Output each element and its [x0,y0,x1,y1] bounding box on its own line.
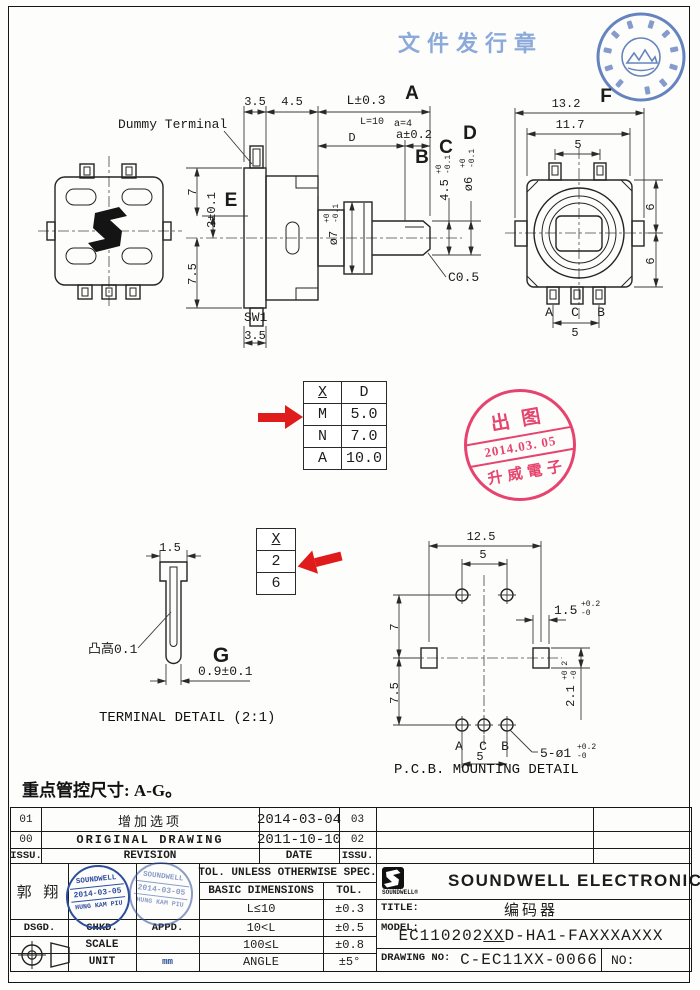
dim-slot-height: 2.1 [564,685,578,707]
pcb-detail-caption: P.C.B. MOUNTING DETAIL [394,762,579,778]
control-dimensions-note: 重点管控尺寸: A-G。 [22,776,182,801]
dim-6-lower: 6 [644,257,658,264]
rev-no-1: 01 [11,809,41,831]
dim-body: 4.5 [281,95,303,109]
title-block: 01 增加选项 2014-03-04 03 00 ORIGINAL DRAWIN… [10,807,692,972]
xd-header-x: X [318,384,327,401]
rev-date-1: 2014-03-04 [259,809,339,831]
terminal-detail: 1.5 凸高0.1 G 0.9±0.1 [88,541,253,685]
rev-no-0: 00 [11,831,41,848]
dim-terminal-width: 1.5 [159,541,181,555]
rev-issue-0: 02 [339,831,376,848]
rev-header-issue: ISSU. [339,848,376,863]
projection-symbol-icon [17,940,73,970]
x26-row-2: 2 [257,551,296,573]
pin-label-a: A [545,305,553,320]
front-view [38,156,182,306]
basic-dim-header: BASIC DIMENSIONS [199,882,323,899]
soundwell-logo-small [382,867,404,889]
rev-desc-0: ORIGINAL DRAWING [41,831,259,848]
pcb-pin-b: B [501,739,509,754]
pin-label-b: B [597,305,605,320]
registered-mark: ® [414,889,418,896]
dim-slot-width-hi: +0.2 [581,600,600,609]
rev-header-date: DATE [259,848,339,863]
dim-slot-span: 12.5 [467,530,496,544]
xd-row-n: N [304,426,342,448]
bump-height-note: 凸高0.1 [88,641,138,657]
dim-offset: 2±0.1 [205,192,219,228]
soundwell-logo [88,207,127,252]
hole-callout-hi: +0.2 [577,743,596,752]
pin-label-c: C [571,305,579,320]
dim-overall: 13.2 [552,97,581,111]
designer-name: 郭 翔 [11,863,68,919]
tol-value-3: ±0.8 [323,936,376,953]
dim-step-tol-lo: -0.1 [444,155,453,174]
dim-6-upper: 6 [644,203,658,210]
chamfer-note: C0.5 [448,270,479,285]
dim-bushing-lo: -0.1 [332,204,341,223]
dim-slot-height-hi: +0.2 [561,661,570,680]
dim-bushing-dia: ø7 [327,231,341,245]
dim-slot-height-lo: -0 [570,670,579,680]
terminal-detail-caption: TERMINAL DETAIL (2:1) [99,710,275,726]
dim-plate: 3.5 [244,95,266,109]
rear-view: 13.2 F 11.7 5 6 6 A C B 5 [505,86,663,340]
title-label: TITLE: [381,901,441,915]
rev-date-0: 2011-10-10 [259,831,339,848]
mark-D: D [463,123,477,144]
tol-header: TOL. UNLESS OTHERWISE SPEC. [199,863,376,882]
side-view: Dummy Terminal 3.5 4.5 L±0.3 A L=10 D a=… [118,83,481,348]
x26-header: X [271,531,280,548]
dim-switch: 3.5 [244,329,266,343]
pcb-mounting-detail: 12.5 5 7 7.5 1.5 +0.2 -0 2.1 [388,530,600,768]
dsgd-label: DSGD. [11,919,68,936]
xd-row-m: M [304,404,342,426]
rev-desc-1: 增加选项 [41,809,259,831]
dim-shaft-dia: ø6 [462,177,476,191]
model-value: EC110202XXD-HA1-FAXXXAXXX [391,926,671,946]
dim-pcb-upper: 7 [388,623,402,630]
mark-E: E [225,190,238,211]
logo-caption: SOUNDWELL® [382,889,418,896]
dim-upper: 7 [186,188,200,195]
xd-header-d: D [342,382,387,404]
scale-label: SCALE [68,936,136,953]
tol-range-4: ANGLE [199,953,323,971]
dummy-terminal-label: Dummy Terminal [118,117,227,132]
dim-pin-top: 5 [574,138,581,152]
tol-value-2: ±0.5 [323,919,376,936]
rev-header-desc: REVISION [41,848,259,863]
no-label: NO: [611,951,681,969]
dim-bushing-hi: +0 [323,213,332,223]
rev-header-no: ISSU. [11,848,41,863]
xd-row-a: A [304,448,342,470]
tol-value-4: ±5° [323,953,376,971]
tol-range-2: 10<L [199,919,323,936]
tol-col-header: TOL. [323,882,376,899]
unit-label: UNIT [68,953,136,971]
drawing-no-label: DRAWING NO: [381,951,459,965]
dim-shaft-dia-lo: -0.1 [468,149,477,168]
tol-value-1: ±0.3 [323,899,376,919]
dim-flat-length: a±0.2 [396,128,432,142]
drawing-sheet: 文件发行章 [0,0,700,990]
dim-step: 4.5 [438,179,452,201]
red-arrow-xd [258,405,303,429]
dim-terminal-tip: 0.9±0.1 [198,664,253,679]
dim-slot-width-lo: -0 [581,609,591,618]
hole-callout-lo: -0 [577,752,587,761]
xd-value-n: 7.0 [342,426,387,448]
note-shaft-length: L=10 [360,117,384,128]
switch-label: SW1 [244,310,268,325]
unit-value: mm [136,953,199,971]
title-value: 编码器 [441,899,621,919]
mark-B: B [415,147,429,168]
dim-shaft-dia-hi: +0 [459,158,468,168]
xd-dimension-table: X D M 5.0 N 7.0 A 10.0 [303,381,387,470]
dim-flat-position: D [348,131,355,145]
rev-issue-1: 03 [339,809,376,831]
tol-range-3: 100≤L [199,936,323,953]
x26-row-6: 6 [257,573,296,595]
dim-body: 11.7 [556,118,585,132]
mark-F: F [600,86,612,107]
company-name: SOUNDWELL ELECTRONICS [448,871,700,891]
dim-hole-top: 5 [479,548,486,562]
dim-shaft-length: L±0.3 [346,93,385,108]
xd-value-a: 10.0 [342,448,387,470]
company-logo-group: SOUNDWELL® [382,867,418,896]
dim-pcb-lower: 7.5 [388,682,402,704]
xd-value-m: 5.0 [342,404,387,426]
mark-A: A [405,83,419,104]
tol-range-1: L≤10 [199,899,323,919]
hole-callout: 5-ø1 [540,746,571,761]
dim-lower: 7.5 [186,263,200,285]
dim-pin-bottom: 5 [571,326,578,340]
dim-slot-width: 1.5 [554,603,577,618]
drawing-no-value: C-EC11XX-0066 [459,950,599,970]
x26-table: X 2 6 [256,528,296,595]
dim-step-tol-hi: +0 [435,164,444,174]
